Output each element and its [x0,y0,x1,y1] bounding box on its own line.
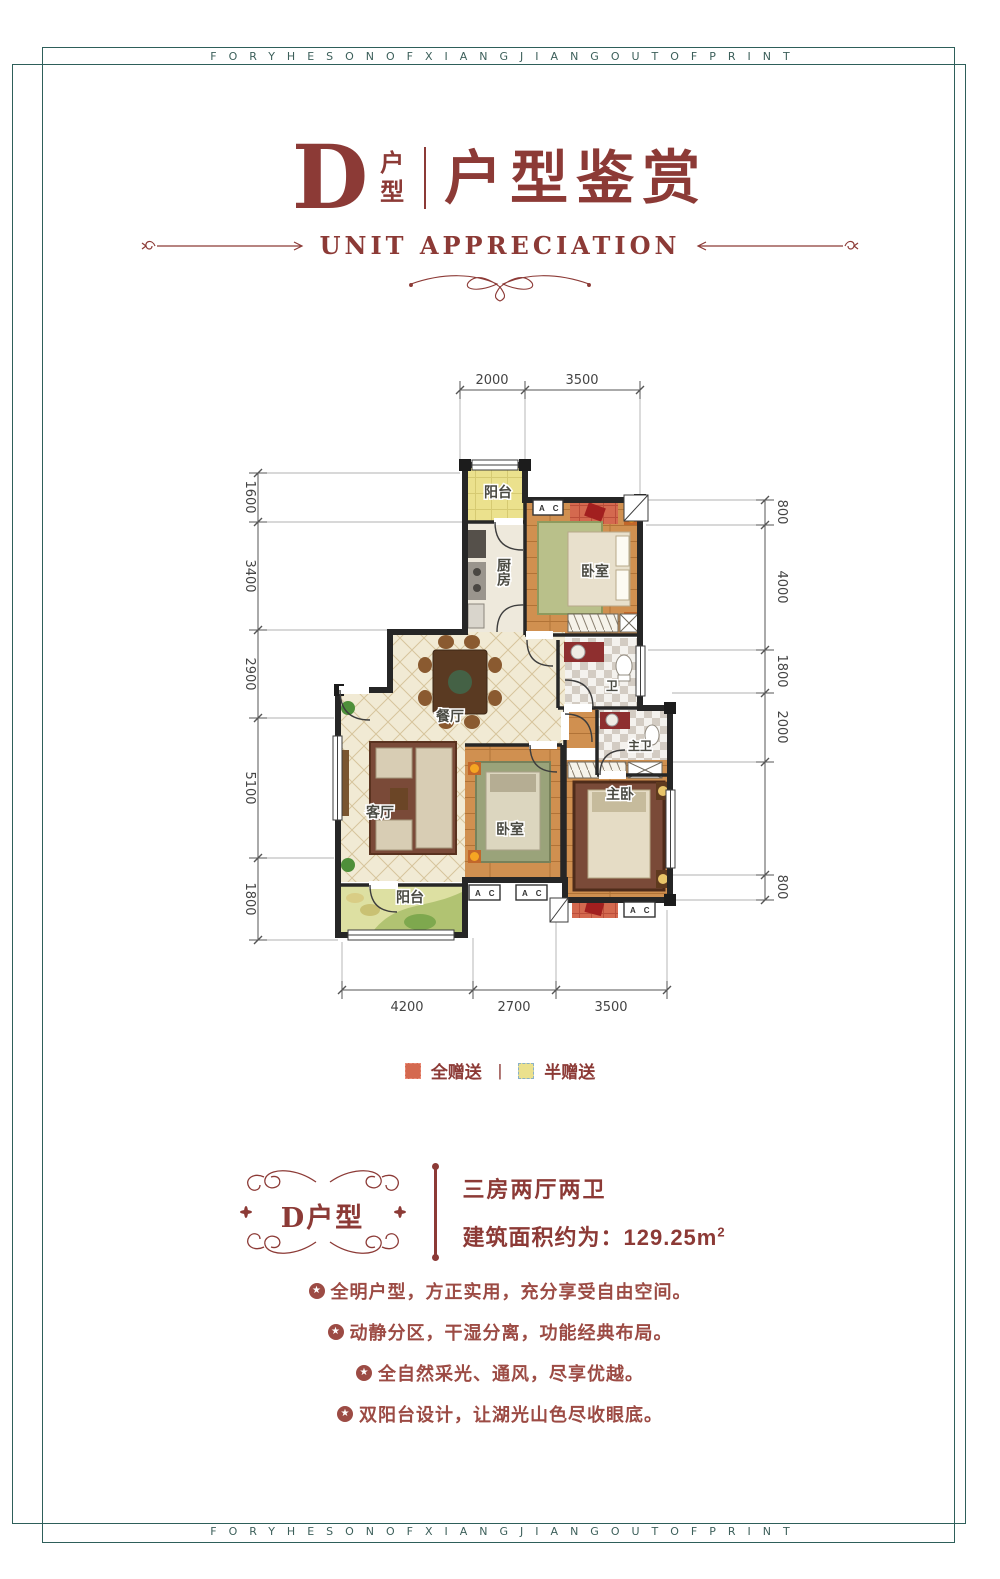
dim-right-3: 1800 [774,654,789,687]
unit-letter-caption: 户型 [378,149,406,207]
center-ornament-icon [405,270,595,304]
area-value: 建筑面积约为：129.25m [463,1225,718,1250]
subtitle-row: UNIT APPRECIATION [0,231,1000,260]
label-master-bedroom: 主卧 [606,786,634,802]
dim-left-3: 2900 [242,657,257,690]
flourish-left-icon [141,235,306,257]
pillar [664,894,676,906]
unit-letter: D [292,138,368,217]
corner-window-bottom [550,898,568,922]
dim-bottom-2: 2700 [497,1000,530,1015]
dim-right-5: 800 [774,875,789,900]
window-master [666,790,675,868]
window-bath [636,646,645,696]
area-sup: 2 [717,1225,725,1240]
pillar [459,459,471,471]
poster-page: FORYHESONOFXIANGJIANGOUTOFPRINT FORYHESO… [0,0,1000,1579]
full-gift-label: 全赠送 [431,1058,482,1083]
ac-label: A C [630,906,652,915]
dim-right-2: 4000 [774,570,789,603]
ac-box-right: A C [624,902,655,917]
half-gift-label: 半赠送 [544,1058,595,1083]
feature-item: ★ 全自然采光、通风，尽享优越。 [0,1360,1000,1386]
layout-text: 三房两厅两卫 [463,1172,763,1204]
bottom-band-text: FORYHESONOFXIANGJIANGOUTOFPRINT [0,1525,1000,1538]
star-bullet-icon: ★ [337,1406,353,1422]
label-bedroom-mid: 卧室 [496,821,524,837]
dim-top-1: 2000 [475,373,508,388]
subtitle: UNIT APPRECIATION [320,231,681,260]
feature-text: 动静分区，干湿分离，功能经典布局。 [350,1319,673,1345]
label-bath: 卫 [606,679,618,693]
ac-box-top: A C [533,500,563,515]
dim-left-4: 5100 [242,771,257,804]
flourish-right-icon [694,235,859,257]
feature-item: ★ 双阳台设计，让湖光山色尽收眼底。 [0,1401,1000,1427]
corner-window-bedroom-top [624,495,648,521]
pillar [519,459,531,471]
label-dining: 餐厅 [435,708,464,724]
master-furniture [568,762,670,890]
title-row: D 户型 户型鉴赏 [0,138,1000,217]
ac-label: A C [539,504,561,513]
full-gift-swatch-icon [405,1063,421,1079]
half-gift-swatch-icon [518,1063,534,1079]
header: D 户型 户型鉴赏 UNIT APPRECIATION [0,138,1000,309]
label-balcony-bottom: 阳台 [396,889,424,905]
window-balcony-top [472,460,518,470]
label-balcony-top: 阳台 [484,484,512,500]
title-divider [424,147,426,209]
floor-plan: 2000 3500 1600 3400 2900 5100 1800 800 4… [220,350,800,1020]
ac-label: A C [475,889,497,898]
label-kitchen: 厨房 [496,558,512,587]
dim-left-2: 3400 [242,559,257,592]
window-living [333,736,342,820]
dim-left-1: 1600 [242,480,257,513]
summary-section: D户型 三房两厅两卫 建筑面积约为：129.25m2 [0,1160,1000,1264]
dim-bottom-1: 4200 [390,1000,423,1015]
ac-label: A C [522,889,544,898]
feature-text: 全明户型，方正实用，充分享受自由空间。 [331,1278,692,1304]
pillar [664,702,676,714]
summary-divider [434,1166,437,1258]
feature-item: ★ 全明户型，方正实用，充分享受自由空间。 [0,1278,1000,1304]
dim-right-1: 800 [774,500,789,525]
unit-badge: D户型 [238,1160,408,1264]
page-title: 户型鉴赏 [444,149,708,207]
label-master-bath: 主卫 [628,738,652,753]
window-balcony-bottom [348,930,454,940]
ac-box-mid-1: A C [469,885,500,900]
legend-divider: | [498,1061,502,1081]
features-list: ★ 全明户型，方正实用，充分享受自由空间。 ★ 动静分区，干湿分离，功能经典布局… [0,1278,1000,1442]
area-text: 建筑面积约为：129.25m2 [463,1220,763,1252]
top-band-text: FORYHESONOFXIANGJIANGOUTOFPRINT [0,50,1000,63]
label-bedroom-top: 卧室 [581,563,609,579]
legend: 全赠送 | 半赠送 [0,1058,1000,1083]
dim-top-2: 3500 [565,373,598,388]
dim-right-4: 2000 [774,710,789,743]
dim-left-5: 1800 [242,882,257,915]
feature-text: 全自然采光、通风，尽享优越。 [378,1360,644,1386]
badge-label: D户型 [238,1196,408,1235]
ac-box-mid-2: A C [516,885,547,900]
feature-item: ★ 动静分区，干湿分离，功能经典布局。 [0,1319,1000,1345]
feature-text: 双阳台设计，让湖光山色尽收眼底。 [359,1401,663,1427]
bedroom-mid-furniture [468,762,550,863]
star-bullet-icon: ★ [309,1283,325,1299]
summary-info: 三房两厅两卫 建筑面积约为：129.25m2 [463,1172,763,1252]
label-living: 客厅 [365,804,394,820]
kitchen-counter [468,530,486,628]
star-bullet-icon: ★ [356,1365,372,1381]
star-bullet-icon: ★ [328,1324,344,1340]
dim-bottom-3: 3500 [594,1000,627,1015]
